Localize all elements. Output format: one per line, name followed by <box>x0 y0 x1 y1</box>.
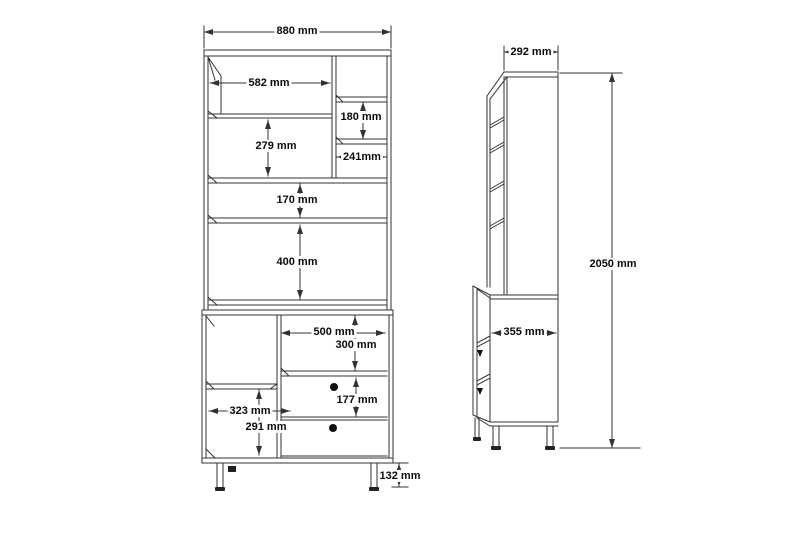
side-view-drawing <box>473 46 640 450</box>
dim-label-top-shelf-width: 582 mm <box>247 77 292 89</box>
cabinet-dimension-drawing <box>0 0 800 533</box>
dim-label-upper-left-shelf-height: 279 mm <box>254 140 299 152</box>
dim-label-base-opening-width: 500 mm <box>312 326 357 338</box>
rear-leg <box>228 466 236 472</box>
drawer-knob <box>329 383 338 432</box>
dim-label-top-depth: 292 mm <box>509 46 554 58</box>
dim-label-base-left-height: 291 mm <box>244 421 289 433</box>
dim-label-base-depth: 355 mm <box>502 326 547 338</box>
technical-drawing-canvas: 880 mm 582 mm 180 mm 241mm 279 mm 170 mm… <box>0 0 800 533</box>
dim-label-base-left-width: 323 mm <box>228 405 273 417</box>
dim-label-middle-shelf-height: 170 mm <box>275 194 320 206</box>
dim-label-leg-height: 132 mm <box>378 470 423 482</box>
dim-label-overall-width: 880 mm <box>275 25 320 37</box>
dim-label-drawer-height: 177 mm <box>335 394 380 406</box>
dim-label-base-opening-height: 300 mm <box>334 339 379 351</box>
dim-label-lower-shelf-height: 400 mm <box>275 256 320 268</box>
dim-label-upper-right-shelf-height: 180 mm <box>339 111 384 123</box>
dim-label-overall-height: 2050 mm <box>587 258 638 270</box>
dim-label-upper-right-shelf-width: 241mm <box>341 151 383 163</box>
